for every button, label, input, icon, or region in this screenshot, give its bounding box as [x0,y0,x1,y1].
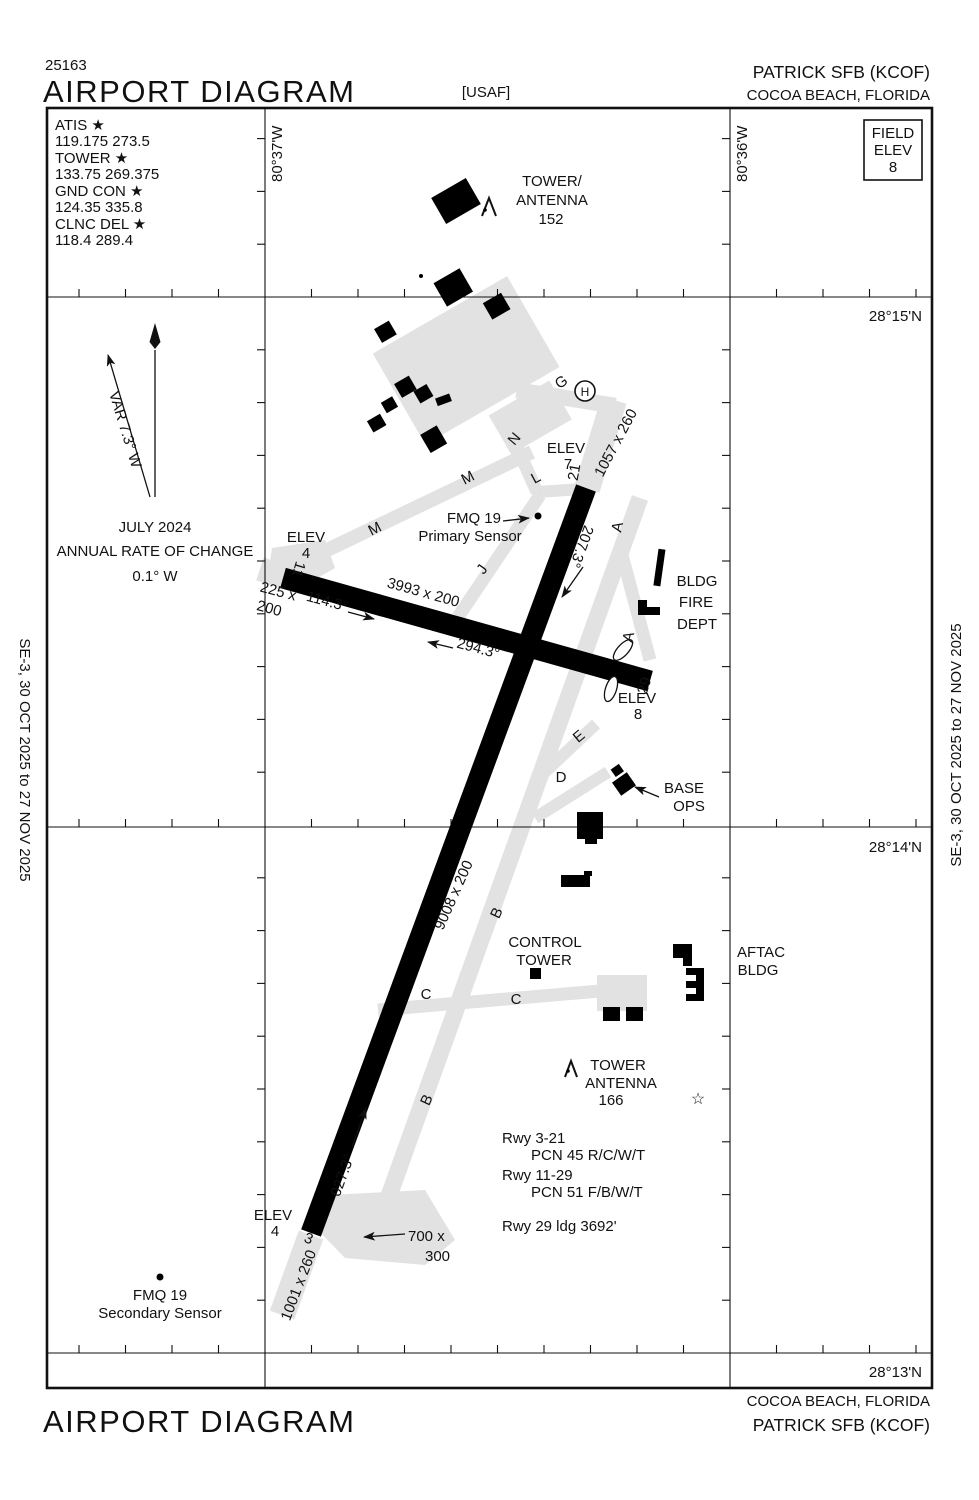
taxiway-label-a2: A [619,630,638,644]
fire-dept-building [638,600,660,615]
base-ops-arrow [635,787,659,797]
footer: COCOA BEACH, FLORIDA PATRICK SFB (KCOF) … [43,1393,930,1439]
variation-label: VAR 7.3° W [105,389,145,470]
control-tower-line1: CONTROL [508,934,581,951]
taxiway-label-d: D [556,769,567,786]
small-dot [419,274,423,278]
aftac-building-2 [686,968,704,1001]
longitude-label-80-36: 80°36'W [734,125,751,182]
comm-frequencies: ATIS ★ 119.175 273.5 TOWER ★ 133.75 269.… [55,117,159,249]
elev-4-mid-line2: 4 [302,545,310,562]
airport-city-bottom: COCOA BEACH, FLORIDA [747,1393,930,1410]
variation-date: JULY 2024 [119,519,192,536]
field-elev-line: ELEV [874,142,912,159]
midfield-building-1b [585,839,597,844]
variation-caption: ANNUAL RATE OF CHANGE [57,543,254,560]
pad-700-dim-l2: 300 [425,1248,450,1265]
fire-dept-line3: DEPT [677,616,717,633]
note-line: Rwy 3-21 [502,1130,565,1147]
taxiway-m [302,452,532,562]
edition-left: SE-3, 30 OCT 2025 to 27 NOV 2025 [16,638,33,881]
c-pad-building-1 [603,1007,620,1021]
airport-diagram-page: H ☆ 25163 AIRPORT DIAGRAM [USAF] PATRICK… [0,0,979,1500]
aftac-building-1 [673,944,692,966]
elev-4-south-line2: 4 [271,1223,279,1240]
airport-name-top: PATRICK SFB (KCOF) [753,62,930,82]
comm-line: 119.175 273.5 [55,133,150,150]
variation-rate: 0.1° W [132,568,178,585]
c-pad-building-2 [626,1007,643,1021]
fmq19-primary-line1: FMQ 19 [447,510,501,527]
control-tower-building [530,968,541,979]
fire-dept-line2: FIRE [679,594,713,611]
taxiway-c [378,991,600,1010]
runway-notes: Rwy 3-21 PCN 45 R/C/W/T Rwy 11-29 PCN 51… [502,1130,645,1235]
field-elev-line: FIELD [872,125,915,142]
midfield-building-2 [561,875,590,887]
comm-line: 118.4 289.4 [55,232,133,249]
fmq19-primary-line2: Primary Sensor [418,528,521,545]
control-tower-line2: TOWER [516,952,572,969]
midfield-building-1 [577,812,603,839]
tower-antenna-152-building [431,178,481,224]
latitude-label-28-14: 28°14'N [869,839,922,856]
comm-line: TOWER ★ [55,150,128,167]
tower-166-line3: 166 [598,1092,623,1109]
elev-7-line2: 7 [564,456,572,473]
airport-name-bottom: PATRICK SFB (KCOF) [753,1415,930,1435]
longitude-label-80-37: 80°37'W [269,125,286,182]
airport-diagram-canvas: H ☆ 25163 AIRPORT DIAGRAM [USAF] PATRICK… [0,0,979,1500]
comm-line: 124.35 335.8 [55,199,143,216]
elev-4-mid-line1: ELEV [287,529,325,546]
tower-152-line3: 152 [538,211,563,228]
fmq19-primary-dot [535,513,542,520]
helipad-label: H [581,385,590,399]
aftac-line2: BLDG [738,962,779,979]
operator-label: [USAF] [462,84,510,101]
tower-166-line1: TOWER [590,1057,646,1074]
elev-8-line1: ELEV [618,690,656,707]
north-arrow-head [150,323,161,349]
pad-700-dim-l1: 700 x [408,1228,445,1245]
antenna-152-icon [482,198,496,216]
antenna-166-dot [566,1069,570,1073]
west-building-1 [374,321,397,343]
elev-4-south-line1: ELEV [254,1207,292,1224]
elev-8-line2: 8 [634,706,642,723]
note-ldg: Rwy 29 ldg 3692' [502,1218,617,1235]
base-ops-line2: OPS [673,798,705,815]
chart-number: 25163 [45,57,87,74]
page-title: AIRPORT DIAGRAM [43,74,355,109]
note-line: Rwy 11-29 [502,1167,573,1184]
fmq19-secondary-line2: Secondary Sensor [98,1305,221,1322]
edition-right: SE-3, 30 OCT 2025 to 27 NOV 2025 [948,623,965,866]
base-ops-building-1 [611,764,624,777]
elev-7-line1: ELEV [547,440,585,457]
base-ops-line1: BASE [664,780,704,797]
aftac-line1: AFTAC [737,944,785,961]
fmq19-secondary-line1: FMQ 19 [133,1287,187,1304]
midfield-building-2b [584,871,592,876]
comm-line: CLNC DEL ★ [55,216,146,233]
tower-152-line1: TOWER/ [522,173,583,190]
comm-line: GND CON ★ [55,183,143,200]
tower-152-line2: ANTENNA [516,192,588,209]
fire-dept-line1: BLDG [677,573,718,590]
comm-line: ATIS ★ [55,117,105,134]
page-title-bottom: AIRPORT DIAGRAM [43,1404,355,1439]
fmq19-secondary-dot [157,1274,164,1281]
overrun-11 [260,569,284,577]
airport-city-top: COCOA BEACH, FLORIDA [747,87,930,104]
hdg-294-arrow [428,642,453,648]
field-elev-box: FIELD ELEV 8 [864,120,922,180]
star-icon: ☆ [691,1091,705,1108]
tower-166-line2: ANTENNA [585,1075,657,1092]
field-elev-value: 8 [889,159,897,176]
latitude-label-28-13: 28°13'N [869,1364,922,1381]
taxiway-label-c1: C [421,986,432,1003]
west-building-6 [367,414,386,433]
c-apron-pad [597,975,647,1011]
note-line: PCN 51 F/B/W/T [531,1184,643,1201]
fire-dept-pier [653,549,665,587]
latitude-label-28-15: 28°15'N [869,308,922,325]
antenna-152-dot [483,208,487,212]
note-line: PCN 45 R/C/W/T [531,1147,645,1164]
west-building-5 [381,396,398,413]
taxiway-label-c2: C [511,991,522,1008]
header: 25163 AIRPORT DIAGRAM [USAF] PATRICK SFB… [43,57,930,109]
comm-line: 133.75 269.375 [55,166,159,183]
antenna-166-icon [565,1061,577,1077]
